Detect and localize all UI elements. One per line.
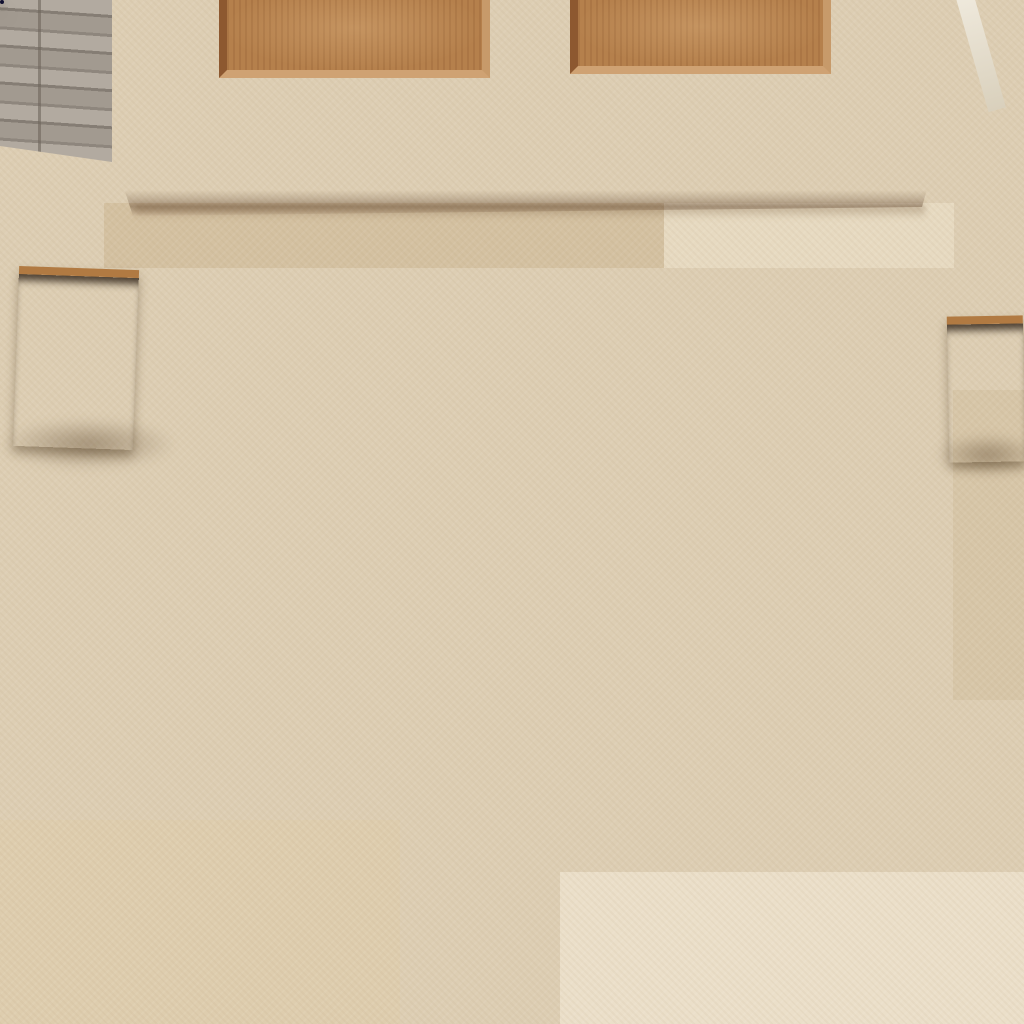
door-shadow: [135, 205, 925, 219]
floor-tile-tint: [560, 872, 1024, 1024]
planter-box-left: [13, 266, 139, 450]
doormat: [0, 0, 4, 4]
planter-box-right: [947, 315, 1024, 462]
door-grooves: [0, 0, 1024, 222]
wooden-door: [0, 0, 1024, 222]
floor-tile-tint: [0, 820, 400, 1024]
scene: [0, 0, 1024, 1024]
